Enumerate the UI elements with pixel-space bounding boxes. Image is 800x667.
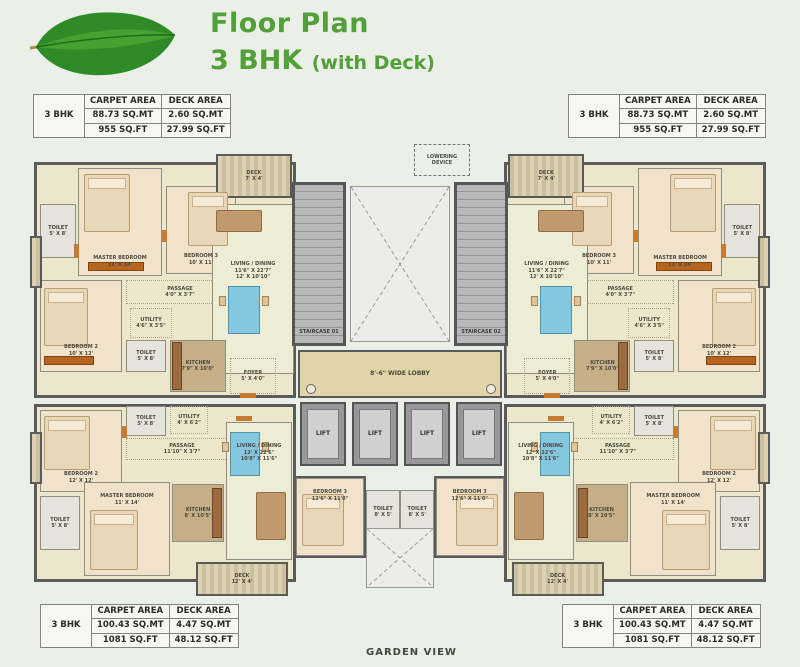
lift-3: LIFT bbox=[404, 402, 450, 466]
floor-plan-page: Floor Plan 3 BHK (with Deck) 3 BHK CARPE… bbox=[0, 0, 800, 667]
wardrobe bbox=[44, 356, 94, 365]
bed bbox=[712, 288, 756, 346]
deck-bottom: DECK 12' X 4' bbox=[512, 562, 604, 596]
room-label: TOILET 5' X 8' bbox=[644, 350, 664, 363]
door-marker bbox=[548, 416, 564, 421]
room-label: BEDROOM 3 10' X 11' bbox=[582, 253, 616, 266]
room-label: TOILET 5' X 8' bbox=[730, 517, 750, 530]
leaf-logo bbox=[28, 4, 178, 88]
room-label: TOILET 8' X 5' bbox=[373, 506, 393, 519]
toilet-room: TOILET 5' X 8' bbox=[40, 496, 80, 550]
staircase-shaft bbox=[350, 186, 450, 342]
garden-view-label: GARDEN VIEW bbox=[366, 647, 457, 658]
room-label: LIVING / DINING 11'6" X 22'7" 12' X 10'1… bbox=[525, 261, 570, 281]
carpet-area-sqft: 955 SQ.FT bbox=[85, 123, 162, 137]
room-label: UTILITY 4' X 6'2" bbox=[599, 414, 622, 427]
kitchen-counter bbox=[618, 342, 628, 390]
side-deck bbox=[30, 236, 42, 288]
side-deck bbox=[758, 236, 770, 288]
carpet-area-sqft: 1081 SQ.FT bbox=[92, 633, 170, 647]
deck-bottom: DECK 12' X 4' bbox=[196, 562, 288, 596]
utility: UTILITY 4' X 6'2" bbox=[592, 406, 630, 434]
room-label: BEDROOM 2 10' X 12' bbox=[64, 344, 98, 357]
room-label: KITCHEN 7'9" X 10'0" bbox=[586, 360, 619, 373]
sofa bbox=[538, 210, 584, 232]
door-marker bbox=[122, 426, 127, 438]
deck-area-sqft: 48.12 SQ.FT bbox=[691, 633, 760, 647]
lift-1: LIFT bbox=[300, 402, 346, 466]
chair bbox=[222, 442, 229, 452]
toilet-room: TOILET 5' X 8' bbox=[126, 406, 166, 436]
door-marker bbox=[162, 230, 167, 242]
toilet-room: TOILET 5' X 8' bbox=[724, 204, 760, 258]
page-title: Floor Plan 3 BHK (with Deck) bbox=[210, 8, 435, 76]
room-label: DECK 12' X 4' bbox=[232, 573, 253, 586]
side-deck bbox=[758, 432, 770, 484]
toilet-room: TOILET 5' X 8' bbox=[720, 496, 760, 550]
room-label: TOILET 5' X 8' bbox=[732, 225, 752, 238]
room-label: LIVING / DINING 12' X 22'6" 10'8" X 11'6… bbox=[519, 443, 564, 463]
title-line1: Floor Plan bbox=[210, 8, 435, 39]
lobby-label: 8'-6" WIDE LOBBY bbox=[370, 370, 430, 378]
room-label: KITCHEN 8' X 10'5" bbox=[185, 507, 212, 520]
chair bbox=[262, 296, 269, 306]
lift-label: LIFT bbox=[368, 430, 382, 438]
room-label: MASTER BEDROOM 11' X 14' bbox=[646, 493, 700, 506]
carpet-area-header: CARPET AREA bbox=[85, 95, 162, 109]
deck-area-sqft: 27.99 SQ.FT bbox=[161, 123, 230, 137]
room-label: DECK 7' X 4' bbox=[245, 170, 262, 183]
deck-area-sqft: 48.12 SQ.FT bbox=[169, 633, 238, 647]
dining-table bbox=[540, 286, 572, 334]
dining-table bbox=[228, 286, 260, 334]
carpet-area-sqft: 955 SQ.FT bbox=[620, 123, 697, 137]
room-label: BEDROOM 2 10' X 12' bbox=[702, 344, 736, 357]
title-bhk: 3 BHK bbox=[210, 45, 302, 76]
room-label: BEDROOM 3 12'6" X 11'0" bbox=[452, 489, 488, 502]
room-label: TOILET 5' X 8' bbox=[48, 225, 68, 238]
room-label: BEDROOM 3 12'6" X 11'0" bbox=[312, 489, 348, 502]
title-line2: 3 BHK (with Deck) bbox=[210, 45, 435, 76]
chair bbox=[219, 296, 226, 306]
bottom-shaft bbox=[366, 528, 434, 588]
room-label: MASTER BEDROOM 11' X 14' bbox=[100, 493, 154, 506]
carpet-area-sqmt: 100.43 SQ.MT bbox=[614, 619, 692, 633]
lift-2: LIFT bbox=[352, 402, 398, 466]
area-table-bottom-left: 3 BHK CARPET AREA DECK AREA 100.43 SQ.MT… bbox=[40, 604, 239, 648]
door-marker bbox=[236, 416, 252, 421]
sofa bbox=[514, 492, 544, 540]
door-marker bbox=[633, 230, 638, 242]
room-label: BEDROOM 2 12' X 12' bbox=[64, 471, 98, 484]
toilet-room: TOILET 5' X 8' bbox=[40, 204, 76, 258]
lowering-device: LOWERING DEVICE bbox=[414, 144, 470, 176]
room-label: PASSAGE 4'0" X 3'7" bbox=[165, 286, 195, 299]
deck-area-header: DECK AREA bbox=[691, 605, 760, 619]
bed bbox=[670, 174, 716, 232]
lift-label: LIFT bbox=[420, 430, 434, 438]
bed bbox=[90, 510, 138, 570]
deck-area-sqmt: 2.60 SQ.MT bbox=[161, 109, 230, 123]
deck-area-header: DECK AREA bbox=[696, 95, 765, 109]
title-suffix: (with Deck) bbox=[312, 52, 435, 74]
staircase-01: STAIRCASE 01 bbox=[292, 182, 346, 346]
deck-area-sqmt: 4.47 SQ.MT bbox=[169, 619, 238, 633]
foyer: FOYER 5' X 4'0" bbox=[230, 358, 276, 394]
column-marker bbox=[486, 384, 496, 394]
unit-label: 3 BHK bbox=[34, 95, 85, 138]
room-label: TOILET 8' X 5' bbox=[407, 506, 427, 519]
room-label: FOYER 5' X 4'0" bbox=[241, 370, 264, 383]
room-label: UTILITY 4'6" X 3'5" bbox=[634, 317, 664, 330]
bed bbox=[84, 174, 130, 232]
door-marker bbox=[544, 393, 560, 398]
staircase-label: STAIRCASE 02 bbox=[457, 329, 505, 336]
room-label: PASSAGE 11'10" X 3'7" bbox=[600, 443, 636, 456]
area-table-bottom-right: 3 BHK CARPET AREA DECK AREA 100.43 SQ.MT… bbox=[562, 604, 761, 648]
unit-label: 3 BHK bbox=[563, 605, 614, 648]
utility: UTILITY 4'6" X 3'5" bbox=[628, 308, 670, 338]
room-label: UTILITY 4' X 6'2" bbox=[177, 414, 200, 427]
room-label: KITCHEN 7'9" X 10'0" bbox=[181, 360, 214, 373]
room-label: MASTER BEDROOM 11' X 14' bbox=[93, 255, 147, 268]
foyer: FOYER 5' X 4'0" bbox=[524, 358, 570, 394]
room-label: KITCHEN 8' X 10'5" bbox=[589, 507, 616, 520]
carpet-area-header: CARPET AREA bbox=[614, 605, 692, 619]
room-label: LIVING / DINING 12' X 22'6" 10'8" X 11'6… bbox=[237, 443, 282, 463]
chair bbox=[574, 296, 581, 306]
carpet-area-sqmt: 88.73 SQ.MT bbox=[620, 109, 697, 123]
toilet-room: TOILET 5' X 8' bbox=[126, 340, 166, 372]
room-label: MASTER BEDROOM 11' X 14' bbox=[653, 255, 707, 268]
chair bbox=[531, 296, 538, 306]
bed bbox=[44, 416, 90, 470]
kitchen-counter bbox=[212, 488, 222, 538]
deck-area-header: DECK AREA bbox=[169, 605, 238, 619]
deck-area-sqft: 27.99 SQ.FT bbox=[696, 123, 765, 137]
carpet-area-sqmt: 88.73 SQ.MT bbox=[85, 109, 162, 123]
kitchen-counter bbox=[578, 488, 588, 538]
room-label: DECK 7' X 4' bbox=[537, 170, 554, 183]
door-marker bbox=[673, 426, 678, 438]
lobby: 8'-6" WIDE LOBBY bbox=[298, 350, 502, 398]
staircase-02: STAIRCASE 02 bbox=[454, 182, 508, 346]
room-label: BEDROOM 2 12' X 12' bbox=[702, 471, 736, 484]
column-marker bbox=[306, 384, 316, 394]
side-deck bbox=[30, 432, 42, 484]
room-label: BEDROOM 3 10' X 11' bbox=[184, 253, 218, 266]
floor-plan: DECK 7' X 4' TOILET 5' X 8' MASTER BEDRO… bbox=[30, 140, 770, 605]
carpet-area-header: CARPET AREA bbox=[620, 95, 697, 109]
bed bbox=[44, 288, 88, 346]
staircase-label: STAIRCASE 01 bbox=[295, 329, 343, 336]
carpet-area-sqmt: 100.43 SQ.MT bbox=[92, 619, 170, 633]
door-marker bbox=[240, 393, 256, 398]
chair bbox=[571, 442, 578, 452]
sofa bbox=[216, 210, 262, 232]
deck-top: DECK 7' X 4' bbox=[216, 154, 292, 198]
room-label: UTILITY 4'6" X 3'5" bbox=[136, 317, 166, 330]
passage: PASSAGE 11'10" X 3'7" bbox=[562, 438, 674, 460]
sofa bbox=[256, 492, 286, 540]
carpet-area-sqft: 1081 SQ.FT bbox=[614, 633, 692, 647]
utility: UTILITY 4'6" X 3'5" bbox=[130, 308, 172, 338]
door-marker bbox=[721, 244, 726, 258]
toilet-room: TOILET 5' X 8' bbox=[634, 340, 674, 372]
room-label: TOILET 5' X 8' bbox=[136, 350, 156, 363]
room-label: PASSAGE 11'10" X 3'7" bbox=[164, 443, 200, 456]
utility: UTILITY 4' X 6'2" bbox=[170, 406, 208, 434]
deck-area-sqmt: 2.60 SQ.MT bbox=[696, 109, 765, 123]
lift-label: LIFT bbox=[316, 430, 330, 438]
room-label: TOILET 5' X 8' bbox=[50, 517, 70, 530]
room-label: FOYER 5' X 4'0" bbox=[535, 370, 558, 383]
room-label: DECK 12' X 4' bbox=[548, 573, 569, 586]
area-table-top-left: 3 BHK CARPET AREA DECK AREA 88.73 SQ.MT … bbox=[33, 94, 231, 138]
room-label: TOILET 5' X 8' bbox=[136, 415, 156, 428]
room-label: PASSAGE 4'0" X 3'7" bbox=[605, 286, 635, 299]
door-marker bbox=[74, 244, 79, 258]
deck-area-sqmt: 4.47 SQ.MT bbox=[691, 619, 760, 633]
deck-area-header: DECK AREA bbox=[161, 95, 230, 109]
room-label: TOILET 5' X 8' bbox=[644, 415, 664, 428]
carpet-area-header: CARPET AREA bbox=[92, 605, 170, 619]
lowering-device-label: LOWERING DEVICE bbox=[427, 154, 457, 167]
lift-label: LIFT bbox=[472, 430, 486, 438]
bed bbox=[710, 416, 756, 470]
room-label: LIVING / DINING 11'6" X 22'7" 12' X 10'1… bbox=[231, 261, 276, 281]
unit-label: 3 BHK bbox=[41, 605, 92, 648]
unit-label: 3 BHK bbox=[569, 95, 620, 138]
wardrobe bbox=[706, 356, 756, 365]
bed bbox=[662, 510, 710, 570]
lift-4: LIFT bbox=[456, 402, 502, 466]
area-table-top-right: 3 BHK CARPET AREA DECK AREA 88.73 SQ.MT … bbox=[568, 94, 766, 138]
toilet-room: TOILET 5' X 8' bbox=[634, 406, 674, 436]
